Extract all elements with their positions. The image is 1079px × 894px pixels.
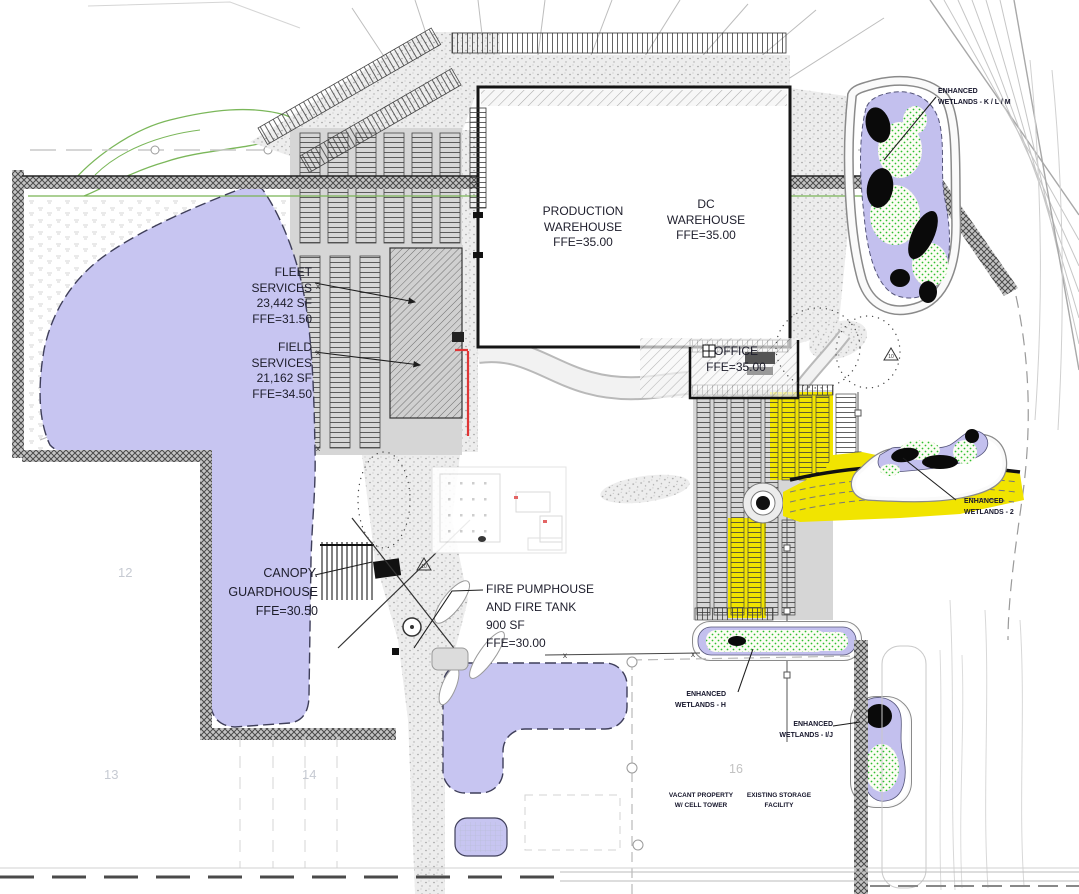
label-wetlands-2: ENHANCED WETLANDS - 2 [964, 496, 1014, 518]
label-fire-pumphouse: FIRE PUMPHOUSE AND FIRE TANK 900 SF FFE=… [486, 580, 594, 652]
south-pond [443, 663, 627, 793]
label-vacant-property: VACANT PROPERTY W/ CELL TOWER [656, 791, 746, 811]
ghost-detail-sheet [432, 467, 566, 553]
parcel-number-12: 12 [118, 565, 132, 580]
parcel-number-14: 14 [302, 767, 316, 782]
parcel-number-16: 16 [729, 762, 743, 776]
revision-triangle-label: 10 [888, 354, 894, 360]
label-wetlands-ij: ENHANCED WETLANDS - I/J [745, 719, 833, 741]
label-field-services: FIELD SERVICES 21,162 SF FFE=34.50 [212, 340, 312, 402]
svg-text:x: x [316, 348, 320, 357]
wetland-klm [849, 81, 956, 310]
label-fleet-services: FLEET SERVICES 23,442 SF FFE=31.50 [212, 265, 312, 327]
label-office: OFFICE FFE=35.00 [686, 344, 786, 375]
label-dc-warehouse: DC WAREHOUSE FFE=35.00 [636, 197, 776, 244]
svg-text:x: x [316, 282, 320, 291]
site-plan-drawing: 10 10 x x x x x [0, 0, 1079, 894]
svg-text:x: x [691, 650, 695, 659]
bottom-lot-lines [240, 735, 337, 868]
svg-text:x: x [563, 651, 567, 660]
revision-triangle-label: 10 [421, 564, 427, 570]
parcel-number-13: 13 [104, 767, 118, 782]
label-canopy-guardhouse: CANOPY. GUARDHOUSE FFE=30.50 [188, 564, 318, 621]
svg-text:x: x [316, 444, 320, 453]
label-existing-storage: EXISTING STORAGE FACILITY [734, 791, 824, 811]
wetland-h [694, 623, 860, 659]
label-wetlands-h: ENHANCED WETLANDS - H [640, 689, 726, 711]
wetland-2 [854, 429, 1005, 499]
label-wetlands-klm: ENHANCED WETLANDS - K / L / M [938, 86, 1011, 108]
fleet-field-building [390, 248, 464, 418]
site-plan-canvas: 10 10 x x x x x PRODUCTION WAREHOUSE FFE… [0, 0, 1079, 894]
label-production-warehouse: PRODUCTION WAREHOUSE FFE=35.00 [513, 204, 653, 251]
